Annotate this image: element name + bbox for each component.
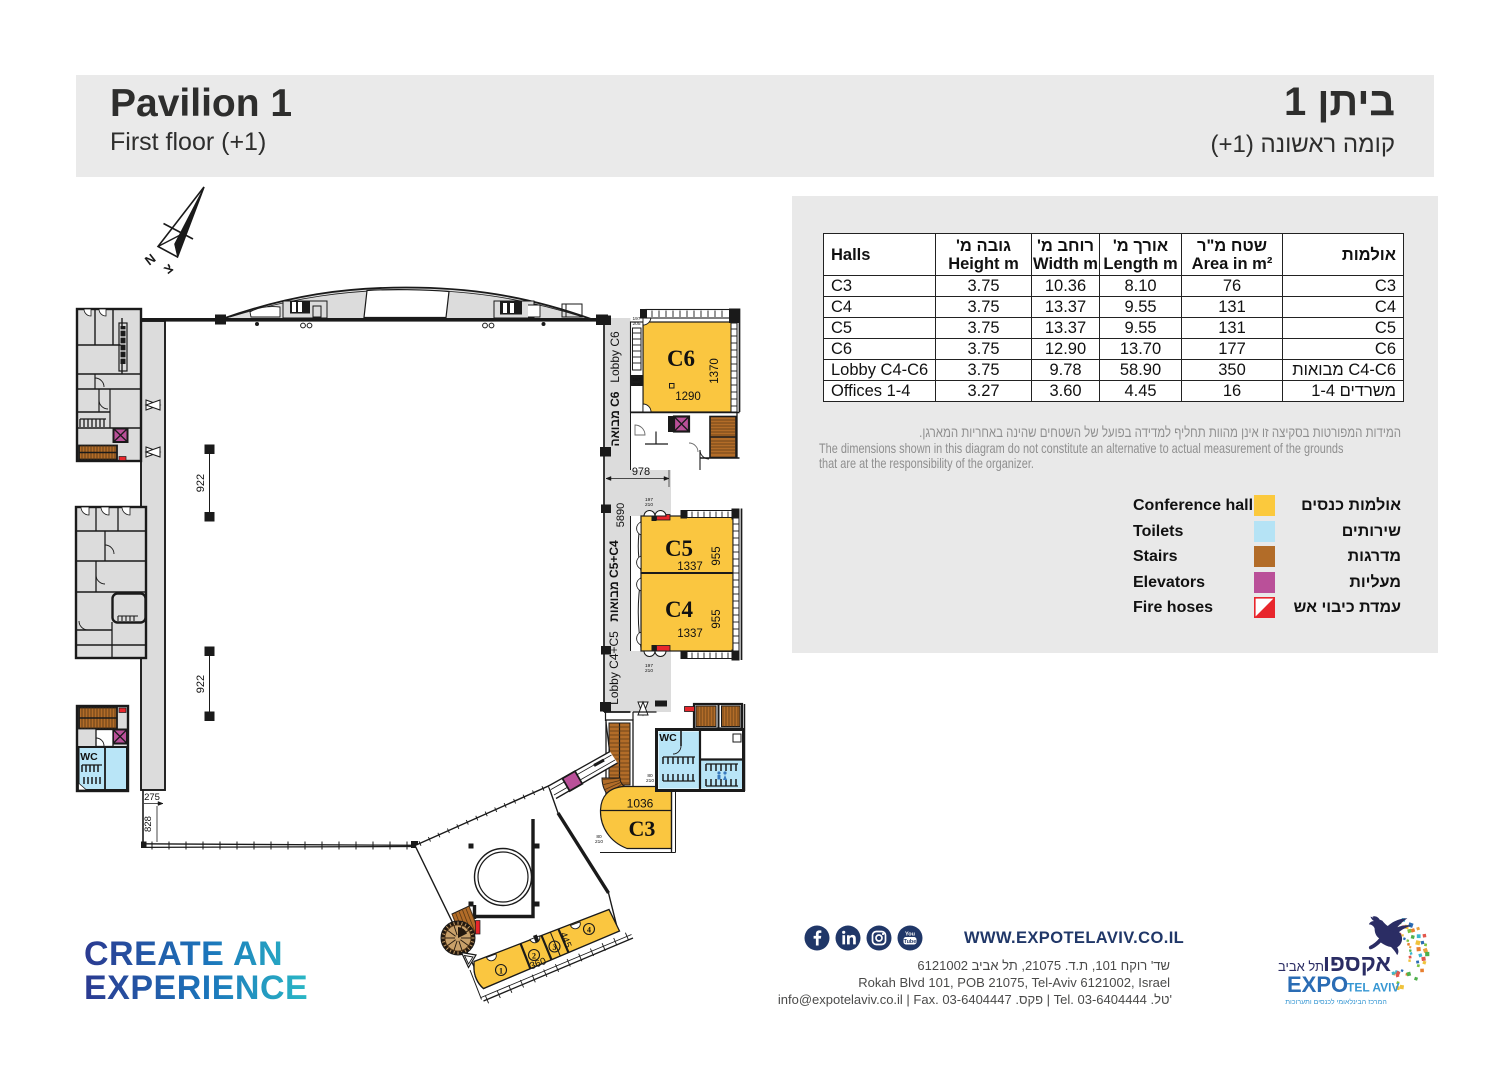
svg-text:1337: 1337 (677, 628, 703, 640)
svg-text:205: 205 (632, 382, 640, 388)
svg-text:955: 955 (711, 609, 723, 628)
svg-text:1337: 1337 (677, 561, 703, 573)
svg-text:1: 1 (499, 967, 503, 976)
svg-text:C4: C4 (665, 597, 694, 622)
svg-text:205: 205 (632, 321, 640, 327)
svg-text:978: 978 (632, 466, 650, 478)
svg-text:צ: צ (160, 260, 176, 277)
svg-text:WC: WC (80, 751, 98, 763)
svg-text:275: 275 (144, 792, 160, 803)
svg-text:1370: 1370 (709, 358, 721, 384)
svg-text:210: 210 (646, 778, 654, 784)
svg-text:Lobby C4+C5: Lobby C4+C5 (607, 631, 621, 705)
svg-text:מבואה C6: מבואה C6 (608, 391, 622, 446)
svg-text:210: 210 (645, 668, 653, 674)
svg-text:C6: C6 (667, 346, 695, 371)
svg-text:922: 922 (195, 474, 207, 492)
svg-text:1290: 1290 (675, 391, 701, 403)
svg-text:210: 210 (595, 839, 603, 845)
svg-text:4: 4 (587, 926, 591, 935)
svg-text:955: 955 (711, 546, 723, 565)
svg-text:3: 3 (553, 943, 557, 952)
svg-text:1036: 1036 (627, 797, 654, 811)
svg-text:C5: C5 (665, 536, 693, 561)
svg-text:C3: C3 (629, 816, 656, 841)
svg-text:WC: WC (659, 732, 677, 744)
svg-text:922: 922 (195, 675, 207, 693)
svg-text:Lobby C6: Lobby C6 (608, 331, 622, 383)
svg-text:210: 210 (645, 502, 653, 508)
svg-text:5890: 5890 (615, 503, 627, 527)
svg-text:מבואות C5+C4: מבואות C5+C4 (607, 540, 621, 622)
svg-text:N: N (142, 251, 159, 269)
svg-text:828: 828 (143, 816, 154, 832)
